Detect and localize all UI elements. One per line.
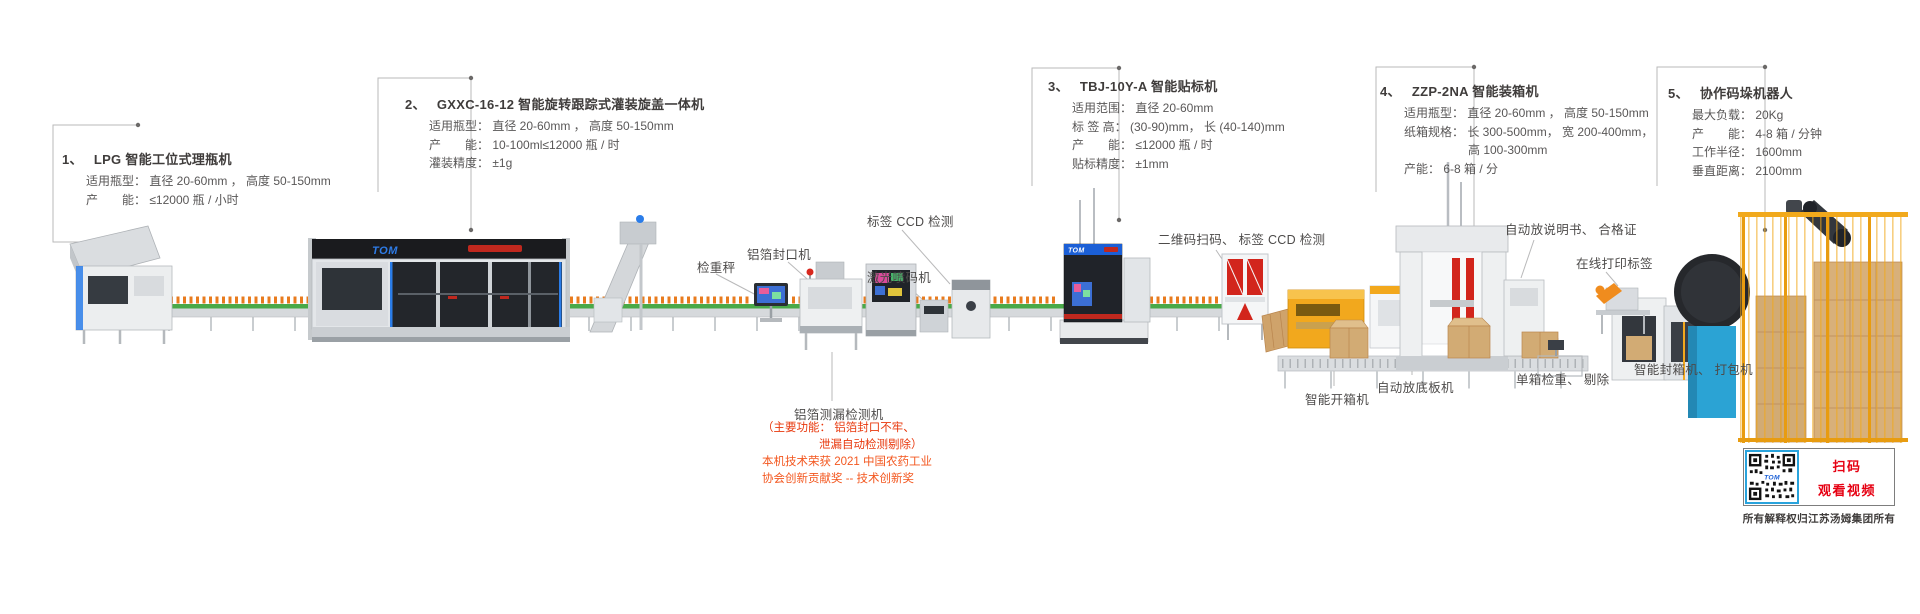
callout-specs: 适用瓶型： 直径 20-60mm ， 高度 50-150mm 纸箱规格： 长 3… — [1380, 104, 1653, 178]
callout-title: 1、LPG 智能工位式理瓶机 — [62, 149, 331, 168]
callout-specs: 适用瓶型： 直径 20-60mm ， 高度 50-150mm 产 能： 10-1… — [405, 117, 704, 173]
callout-filling-capping: 2、GXXC-16-12 智能旋转跟踪式灌装旋盖一体机 适用瓶型： 直径 20-… — [405, 94, 704, 173]
machine-filling-capping: TOM — [308, 238, 570, 342]
qr-code: TOM — [1745, 450, 1799, 504]
machine-bottle-unscrambler — [70, 226, 172, 344]
qr-panel: TOM 扫码 观看视频 — [1743, 448, 1895, 506]
callout-number: 3、 — [1048, 79, 1069, 94]
production-line-diagram: TOM — [0, 0, 1920, 614]
callout-title: 3、TBJ-10Y-A 智能贴标机 — [1048, 76, 1285, 95]
callout-number: 1、 — [62, 152, 83, 167]
callout-number: 5、 — [1668, 86, 1689, 101]
qr-caption: 扫码 观看视频 — [1800, 449, 1894, 505]
spec-line: 纸箱规格： 长 300-500mm， 宽 200-400mm， — [1404, 123, 1653, 142]
callout-specs: 最大负载： 20Kg 产 能： 4-8 箱 / 分钟 工作半径： 1600mm … — [1668, 106, 1822, 180]
machine-qr-ccd-station — [1222, 254, 1268, 340]
spec-line: 灌装精度： ±1g — [429, 154, 704, 173]
callout-number: 2、 — [405, 97, 426, 112]
callout-specs: 适用瓶型： 直径 20-60mm ， 高度 50-150mm 产 能： ≤120… — [62, 172, 331, 209]
spec-line: 工作半径： 1600mm — [1692, 143, 1822, 162]
note-line: （主要功能： 铝箔封口不牢、 — [762, 420, 932, 437]
note-line: 协会创新贡献奖 -- 技术创新奖 — [762, 471, 932, 488]
spec-line: 适用瓶型： 直径 20-60mm ， 高度 50-150mm — [86, 172, 331, 191]
brand-logo-qr: TOM — [1764, 475, 1780, 482]
spec-line: 产 能： ≤12000 瓶 / 小时 — [86, 191, 331, 210]
note-line: 泄漏自动检测剔除） — [762, 437, 932, 454]
label-label-ccd: 标签 CCD 检测 — [867, 211, 954, 230]
brand-logo-filling: TOM — [372, 245, 398, 257]
label-case-opener: 智能开箱机 — [1305, 389, 1369, 408]
callout-title: 2、GXXC-16-12 智能旋转跟踪式灌装旋盖一体机 — [405, 94, 704, 113]
callout-palletizing-robot: 5、协作码垛机器人 最大负载： 20Kg 产 能： 4-8 箱 / 分钟 工作半… — [1668, 83, 1822, 180]
spec-line: 贴标精度： ±1mm — [1072, 155, 1285, 174]
spec-line: 产 能： 10-100ml≤12000 瓶 / 时 — [429, 136, 704, 155]
label-foil-sealer: 铝箔封口机 — [747, 244, 811, 263]
qr-code-pattern: TOM — [1747, 452, 1797, 502]
spec-line: 适用瓶型： 直径 20-60mm ， 高度 50-150mm — [1404, 104, 1653, 123]
callout-number: 4、 — [1380, 84, 1401, 99]
callout-title: 4、ZZP-2NA 智能装箱机 — [1380, 81, 1653, 100]
label-qr-ccd: 二维码扫码、 标签 CCD 检测 — [1158, 229, 1325, 248]
spec-line: 产 能： 4-8 箱 / 分钟 — [1692, 125, 1822, 144]
label-checkweigher: 检重秤 — [697, 257, 735, 276]
label-laser-coder: 激光喷码机 — [867, 267, 931, 286]
callout-unscrambler: 1、LPG 智能工位式理瓶机 适用瓶型： 直径 20-60mm ， 高度 50-… — [62, 149, 331, 209]
spec-line: 最大负载： 20Kg — [1692, 106, 1822, 125]
brand-logo-labeler: TOM — [1068, 248, 1085, 255]
machine-labeler: TOM — [1060, 188, 1150, 344]
qr-caption-line2: 观看视频 — [1818, 480, 1876, 499]
spec-line: 适用范围： 直径 20-60mm — [1072, 99, 1285, 118]
callout-case-packer: 4、ZZP-2NA 智能装箱机 适用瓶型： 直径 20-60mm ， 高度 50… — [1380, 81, 1653, 178]
label-manual-inserter: 自动放说明书、 合格证 — [1505, 219, 1637, 238]
machine-label-ccd-detector — [952, 280, 990, 338]
label-box-checkweigher: 单箱检重、 剔除 — [1516, 369, 1609, 388]
spec-line: 标 签 高： (30-90)mm， 长 (40-140)mm — [1072, 118, 1285, 137]
machine-foil-sealer-leak-detector — [800, 262, 862, 350]
copyright-note: 所有解释权归江苏汤姆集团所有 — [1736, 511, 1902, 526]
callout-specs: 适用范围： 直径 20-60mm 标 签 高： (30-90)mm， 长 (40… — [1048, 99, 1285, 173]
spec-line: 产 能： ≤12000 瓶 / 时 — [1072, 136, 1285, 155]
spec-line: 高 100-300mm — [1404, 141, 1653, 160]
label-case-sealer-strapper: 智能封箱机、 打包机 — [1634, 359, 1753, 378]
spec-line: 产能： 6-8 箱 / 分 — [1404, 160, 1653, 179]
spec-line: 垂直距离： 2100mm — [1692, 162, 1822, 181]
label-online-label-printer: 在线打印标签 — [1576, 253, 1653, 272]
label-bottom-pad: 自动放底板机 — [1377, 377, 1454, 396]
palletizing-robot-arm — [1786, 200, 1851, 247]
spec-line: 适用瓶型： 直径 20-60mm ， 高度 50-150mm — [429, 117, 704, 136]
callout-labeler: 3、TBJ-10Y-A 智能贴标机 适用范围： 直径 20-60mm 标 签 高… — [1048, 76, 1285, 173]
qr-caption-line1: 扫码 — [1832, 456, 1861, 475]
leak-detector-notes: （主要功能： 铝箔封口不牢、 泄漏自动检测剔除） 本机技术荣获 2021 中国农… — [762, 420, 932, 488]
palletizing-cell — [1738, 200, 1908, 442]
callout-title: 5、协作码垛机器人 — [1668, 83, 1822, 102]
note-line: 本机技术荣获 2021 中国农药工业 — [762, 454, 932, 471]
